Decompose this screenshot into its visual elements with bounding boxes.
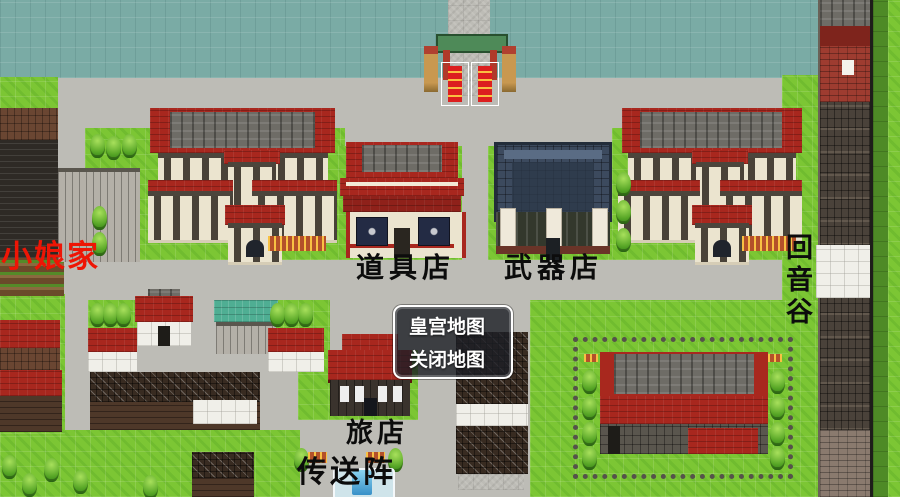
tree [90, 134, 105, 158]
grass-dark-column [873, 0, 888, 497]
left-edge-house-roof1 [0, 320, 60, 348]
storehouse-long-whiteband [193, 400, 257, 424]
left-storehouse-roof [0, 108, 58, 140]
tree [770, 446, 785, 470]
item-shop-eave [340, 178, 464, 196]
tree [582, 446, 597, 470]
tree [770, 422, 785, 446]
inn-banner [340, 386, 349, 402]
inn-banner [355, 386, 364, 402]
inn-banner [393, 386, 402, 402]
mansion-left-door [246, 240, 264, 257]
storehouse-long-roof [90, 372, 260, 402]
warehouse-compound [573, 337, 793, 479]
mansion-right-roof-ridge [640, 112, 782, 148]
tree [298, 303, 313, 327]
mansion-right-entrance-roof [692, 205, 752, 225]
mansion-right-door [713, 240, 731, 257]
storehouse-small-wall [192, 478, 254, 497]
menu-item-palace-map[interactable]: 皇宫地图 [395, 309, 511, 342]
tree [116, 303, 131, 327]
left-edge-house-wall2 [0, 396, 62, 432]
right-strip-brick-roof [820, 26, 872, 48]
tree [92, 206, 107, 230]
house-c-roof [268, 328, 324, 352]
tree [22, 473, 37, 497]
item-shop-awning [343, 196, 461, 212]
grass-right-edge [888, 0, 900, 497]
right-strip-window [842, 60, 854, 75]
map-menu: 皇宫地图 关闭地图 [393, 305, 513, 379]
teal-roof-building-wall [216, 322, 276, 354]
warehouse-roof-mid [600, 396, 768, 424]
tree [770, 370, 785, 394]
tree [616, 228, 631, 252]
house-b-wall [88, 352, 137, 372]
left-edge-house-roof2 [0, 370, 62, 396]
label-teleport: 传送阵 [297, 458, 396, 488]
tree [106, 136, 121, 160]
gate-statue-left [424, 46, 438, 92]
house-c-wall [268, 352, 324, 372]
left-edge-house-wall1 [0, 348, 60, 370]
tree [582, 396, 597, 420]
mansion-left-entrance-roof [225, 205, 285, 225]
label-inn: 旅店 [346, 420, 408, 447]
right-strip-stone-block [820, 0, 870, 28]
tree [284, 303, 299, 327]
item-shop-banner-right [418, 217, 450, 246]
weapon-shop-roof-beam [504, 150, 602, 159]
tree [73, 470, 88, 494]
storehouse-small-roof [192, 452, 254, 478]
right-strip-white-wall [816, 245, 872, 298]
right-strip-tile-roof-2 [820, 298, 872, 430]
inn-door [364, 398, 377, 416]
gate-banner-right [471, 62, 499, 106]
warehouse-roof-ridge [614, 354, 754, 394]
tree [616, 172, 631, 196]
tree [770, 396, 785, 420]
flowerbed [584, 354, 598, 362]
house-a-door [158, 326, 170, 346]
tree [44, 458, 59, 482]
storehouse-column-base [458, 474, 524, 490]
warehouse-door [608, 426, 620, 454]
item-shop-eave-stripe [346, 182, 458, 186]
tree [582, 370, 597, 394]
label-echo-valley: 回音谷 [783, 233, 810, 329]
label-item-shop: 道具店 [356, 254, 455, 282]
teal-roof-building-roof [214, 300, 278, 322]
flowerbed [768, 354, 782, 362]
grass-patch [0, 77, 58, 112]
gate-banner-left [441, 62, 469, 106]
weapon-shop-pillar [500, 208, 516, 250]
right-strip-brick-wall [820, 430, 872, 497]
mansion-left-roof-ridge [170, 112, 315, 148]
tree [616, 200, 631, 224]
tree [143, 475, 158, 497]
menu-item-close-map[interactable]: 关闭地图 [395, 342, 511, 375]
storehouse-column-whiteband [456, 404, 528, 426]
gate-statue-right [502, 46, 516, 92]
weapon-shop-gable [512, 162, 594, 214]
label-home: 小娘家 [1, 242, 100, 273]
tree [582, 422, 597, 446]
warehouse-wall-red-patch [688, 428, 758, 454]
town-map: 小娘家 道具店 武器店 回音谷 旅店 传送阵 皇宫地图 关闭地图 [0, 0, 900, 497]
house-b-roof [88, 328, 137, 352]
storehouse-column-block2 [456, 426, 528, 474]
item-shop-banner-left [356, 217, 388, 246]
flowerbed [268, 236, 326, 251]
right-strip-tile-roof-1 [820, 102, 872, 245]
inn-banner [378, 386, 387, 402]
weapon-shop-pillar [592, 208, 608, 250]
tree [122, 134, 137, 158]
mansion-left-wing-wall-l [148, 191, 233, 243]
tree [270, 303, 285, 327]
item-shop-roof-ridge [362, 145, 442, 172]
house-a-roof [135, 296, 193, 322]
label-weapon-shop: 武器店 [504, 254, 603, 282]
tree [2, 455, 17, 479]
